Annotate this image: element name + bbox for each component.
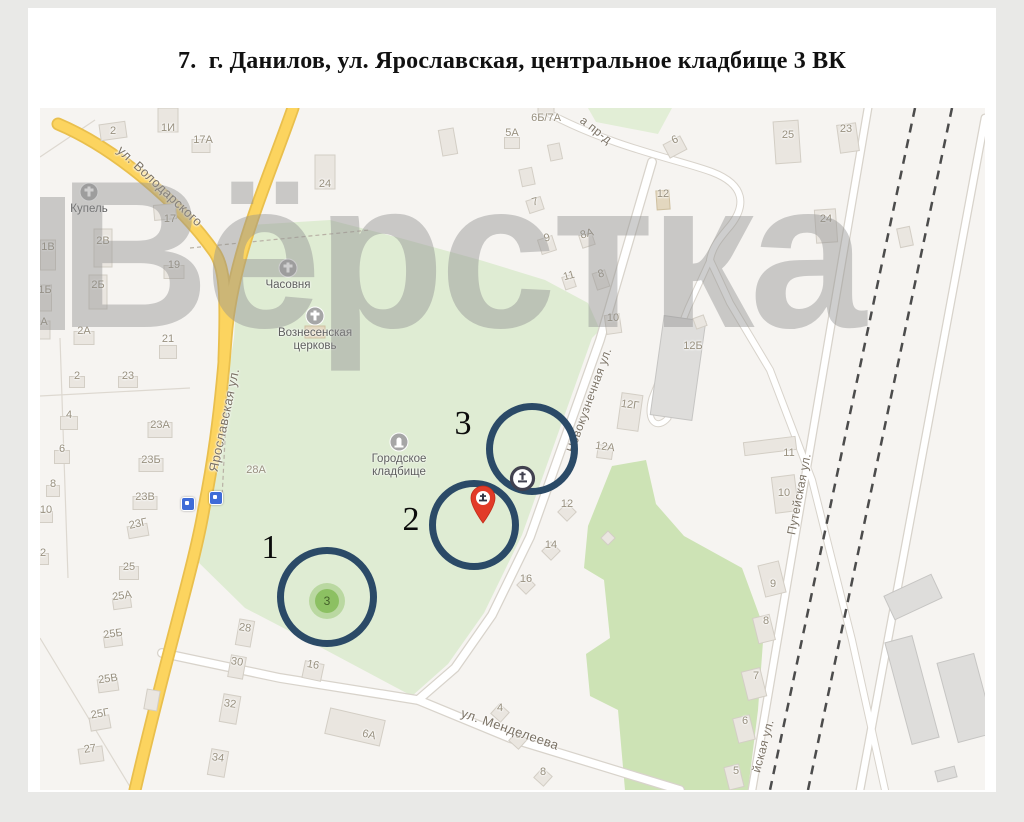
monument-badge-marker bbox=[509, 465, 536, 492]
map-image: 21И17А24172В1В192Б1БА2А21223423А623Б823В… bbox=[40, 108, 985, 790]
document-page: 7. г. Данилов, ул. Ярославская, централь… bbox=[28, 8, 996, 792]
highlight-number-1: 1 bbox=[262, 529, 279, 567]
red-pin-marker bbox=[468, 485, 498, 525]
highlight-number-2: 2 bbox=[403, 501, 420, 539]
map-markers-layer: 3 123 bbox=[40, 108, 985, 790]
highlight-circle-1 bbox=[277, 547, 377, 647]
page-title: 7. г. Данилов, ул. Ярославская, централь… bbox=[28, 48, 996, 75]
highlight-number-3: 3 bbox=[455, 405, 472, 443]
